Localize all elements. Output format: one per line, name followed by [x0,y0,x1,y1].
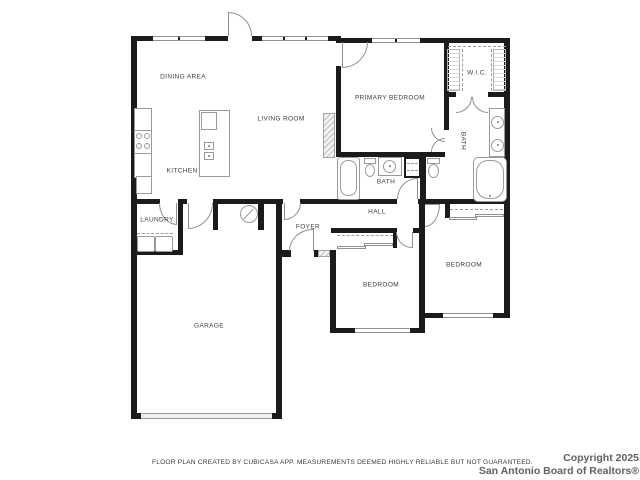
window-mullion [395,39,397,42]
stove-burner [136,133,142,139]
room-label-hall: HALL [368,209,386,216]
linen-shelf [407,163,418,164]
hall-bath-door-arc [397,178,417,199]
closet-shelf [337,235,393,236]
bedroom-bottom-door-arc [396,232,412,248]
wall-wh-closet [258,203,264,230]
copyright-line2: San Antonio Board of Realtors® [479,465,639,478]
toilet-bowl [365,164,375,177]
wall-primary-bath-west [444,97,449,130]
wic-door-arc [472,97,488,113]
copyright-watermark: Copyright 2025 San Antonio Board of Real… [479,452,639,477]
wall-hall-south [331,228,397,233]
wic-shelf [462,49,463,91]
window-mullion [283,37,285,40]
bedroom-bottom-door-leaf [412,232,413,248]
wall-wic-top [420,38,510,43]
room-label-bedroom-bottom: BEDROOM [363,282,399,289]
laundry-counter [137,233,173,234]
stove-burner [136,143,142,149]
window-dining [153,36,205,41]
window-bedroom-bottom [355,328,410,333]
wall-bedroom-right-south [493,313,510,318]
room-label-foyer: FOYER [296,224,320,231]
room-label-living-room: LIVING ROOM [257,116,304,123]
room-label-dining-area: DINING AREA [160,74,206,81]
dishwasher-knob [208,145,210,147]
wic-door-arc [456,97,472,113]
hall-bath-door-leaf [417,178,418,199]
tub-faucet [489,195,491,197]
room-label-bedroom-right: BEDROOM [446,262,482,269]
closet-sliding-door [337,246,366,249]
linen-closet [404,157,421,178]
wall-primary-west [336,66,341,157]
corridor-door-arc [188,203,213,229]
bedroom-right-door-arc [425,204,440,227]
room-label-primary-bedroom: PRIMARY BEDROOM [355,95,425,102]
wall-bedroom-bottom-west [330,250,336,333]
wall-bedroom-bottom-south [330,328,355,333]
wall-foyer-west [276,203,282,419]
foyer-door-arc [284,203,301,220]
floor-plan-page: { "rooms": { "dining_area": "DINING AREA… [0,0,640,480]
closet-sliding-door [364,243,393,246]
washer [137,236,155,252]
wall-top [205,36,228,41]
stove-burner [144,133,150,139]
soaking-tub-basin [476,160,504,199]
wall-left-exterior [131,36,137,419]
wall-top [252,36,262,41]
window-bedroom-right [443,313,493,318]
wic-hanging-rail [493,49,506,91]
room-label-kitchen: KITCHEN [167,168,198,175]
bathtub-basin [340,160,357,196]
front-door-leaf [313,228,314,251]
garage-door [141,413,272,419]
faucet [497,121,499,123]
room-label-primary-bath: BATH [460,132,467,150]
wall-wic-south [488,92,510,97]
toilet-bowl [428,164,439,178]
wic-shelf [491,49,492,91]
faucet [389,165,391,167]
faucet [497,144,499,146]
room-label-wic: W.I.C. [467,70,487,77]
refrigerator [136,176,152,194]
dryer [155,236,173,252]
closet-sliding-door [475,214,504,217]
front-sidelight-window [318,250,330,257]
wall-laundry-east [178,203,183,255]
window-mullion [178,37,180,40]
primary-bath-door-arc [431,138,445,152]
primary-bedroom-door-arc [342,42,368,68]
front-door-arc [289,229,313,251]
wall-foyer-south [277,250,291,257]
wall-closet-right-west [445,203,450,218]
room-label-garage: GARAGE [194,323,224,330]
wall-spine [213,199,283,204]
wall-bedroom-bottom-south [410,328,425,333]
disclaimer-text: FLOOR PLAN CREATED BY CUBICASA APP. MEAS… [152,459,533,466]
stove-burner [144,143,150,149]
island-sink [201,112,217,130]
room-label-hall-bath: BATH [377,179,395,186]
floor-plan: DINING AREA LIVING ROOM KITCHEN LAUNDRY … [0,0,640,480]
wall-wh-closet [213,203,218,230]
window-mullion [305,37,307,40]
wall-top [131,36,153,41]
wic-shelf [448,46,506,47]
linen-shelf [407,170,418,171]
wall-spine [131,199,160,204]
wall-bedroom-right-south [419,313,443,318]
room-label-laundry: LAUNDRY [140,217,173,224]
media-console [323,113,335,158]
copyright-line1: Copyright 2025 [479,452,639,465]
closet-sliding-door [449,217,477,220]
entry-door-arc [228,12,252,36]
wic-hanging-rail [447,49,460,91]
window-primary-bedroom [372,38,420,43]
closet-shelf [450,209,503,210]
window-living [262,36,328,41]
dishwasher-knob [208,155,210,157]
